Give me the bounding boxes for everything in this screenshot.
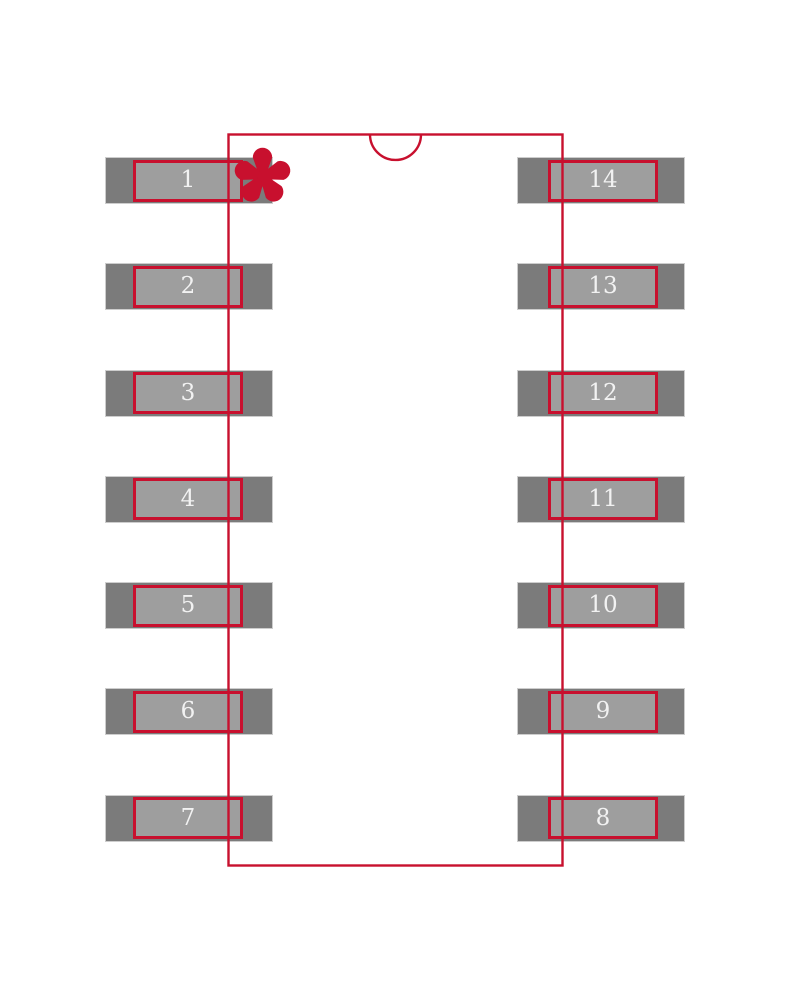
pad-inner-outline: 14 [548, 160, 658, 202]
pad-inner-outline: 5 [133, 585, 243, 627]
pad-number: 2 [181, 275, 196, 298]
pad-inner-outline: 4 [133, 478, 243, 520]
pad-number: 1 [181, 169, 196, 192]
pad-number: 12 [588, 382, 617, 405]
pad-inner-outline: 6 [133, 691, 243, 733]
component-body-outline [229, 135, 563, 866]
pad-number: 8 [596, 807, 611, 830]
pad-pin-10: 10 [517, 582, 685, 629]
pad-inner-outline: 8 [548, 797, 658, 839]
pad-pin-7: 7 [105, 795, 273, 842]
pad-pin-3: 3 [105, 370, 273, 417]
pad-inner-outline: 2 [133, 266, 243, 308]
pad-number: 6 [181, 700, 196, 723]
pin1-notch [370, 135, 421, 160]
pad-number: 3 [181, 382, 196, 405]
pad-pin-11: 11 [517, 476, 685, 523]
pad-number: 10 [588, 594, 617, 617]
pad-number: 7 [181, 807, 196, 830]
pad-pin-4: 4 [105, 476, 273, 523]
pad-inner-outline: 11 [548, 478, 658, 520]
pad-number: 13 [588, 275, 617, 298]
pad-inner-outline: 7 [133, 797, 243, 839]
pad-number: 11 [588, 488, 617, 511]
pad-pin-13: 13 [517, 263, 685, 310]
pad-inner-outline: 9 [548, 691, 658, 733]
pad-pin-9: 9 [517, 688, 685, 735]
pad-number: 5 [181, 594, 196, 617]
pad-pin-6: 6 [105, 688, 273, 735]
pad-inner-outline: 3 [133, 372, 243, 414]
pad-number: 9 [596, 700, 611, 723]
pad-pin-1: 1 [105, 157, 273, 204]
pad-number: 4 [181, 488, 196, 511]
pad-pin-12: 12 [517, 370, 685, 417]
pad-number: 14 [588, 169, 617, 192]
pad-inner-outline: 12 [548, 372, 658, 414]
footprint-canvas: 1 2 3 4 5 6 7 14 13 12 [0, 0, 790, 1000]
pad-pin-5: 5 [105, 582, 273, 629]
pad-inner-outline: 10 [548, 585, 658, 627]
pad-pin-2: 2 [105, 263, 273, 310]
pad-inner-outline: 1 [133, 160, 243, 202]
pad-pin-8: 8 [517, 795, 685, 842]
pad-pin-14: 14 [517, 157, 685, 204]
pad-inner-outline: 13 [548, 266, 658, 308]
